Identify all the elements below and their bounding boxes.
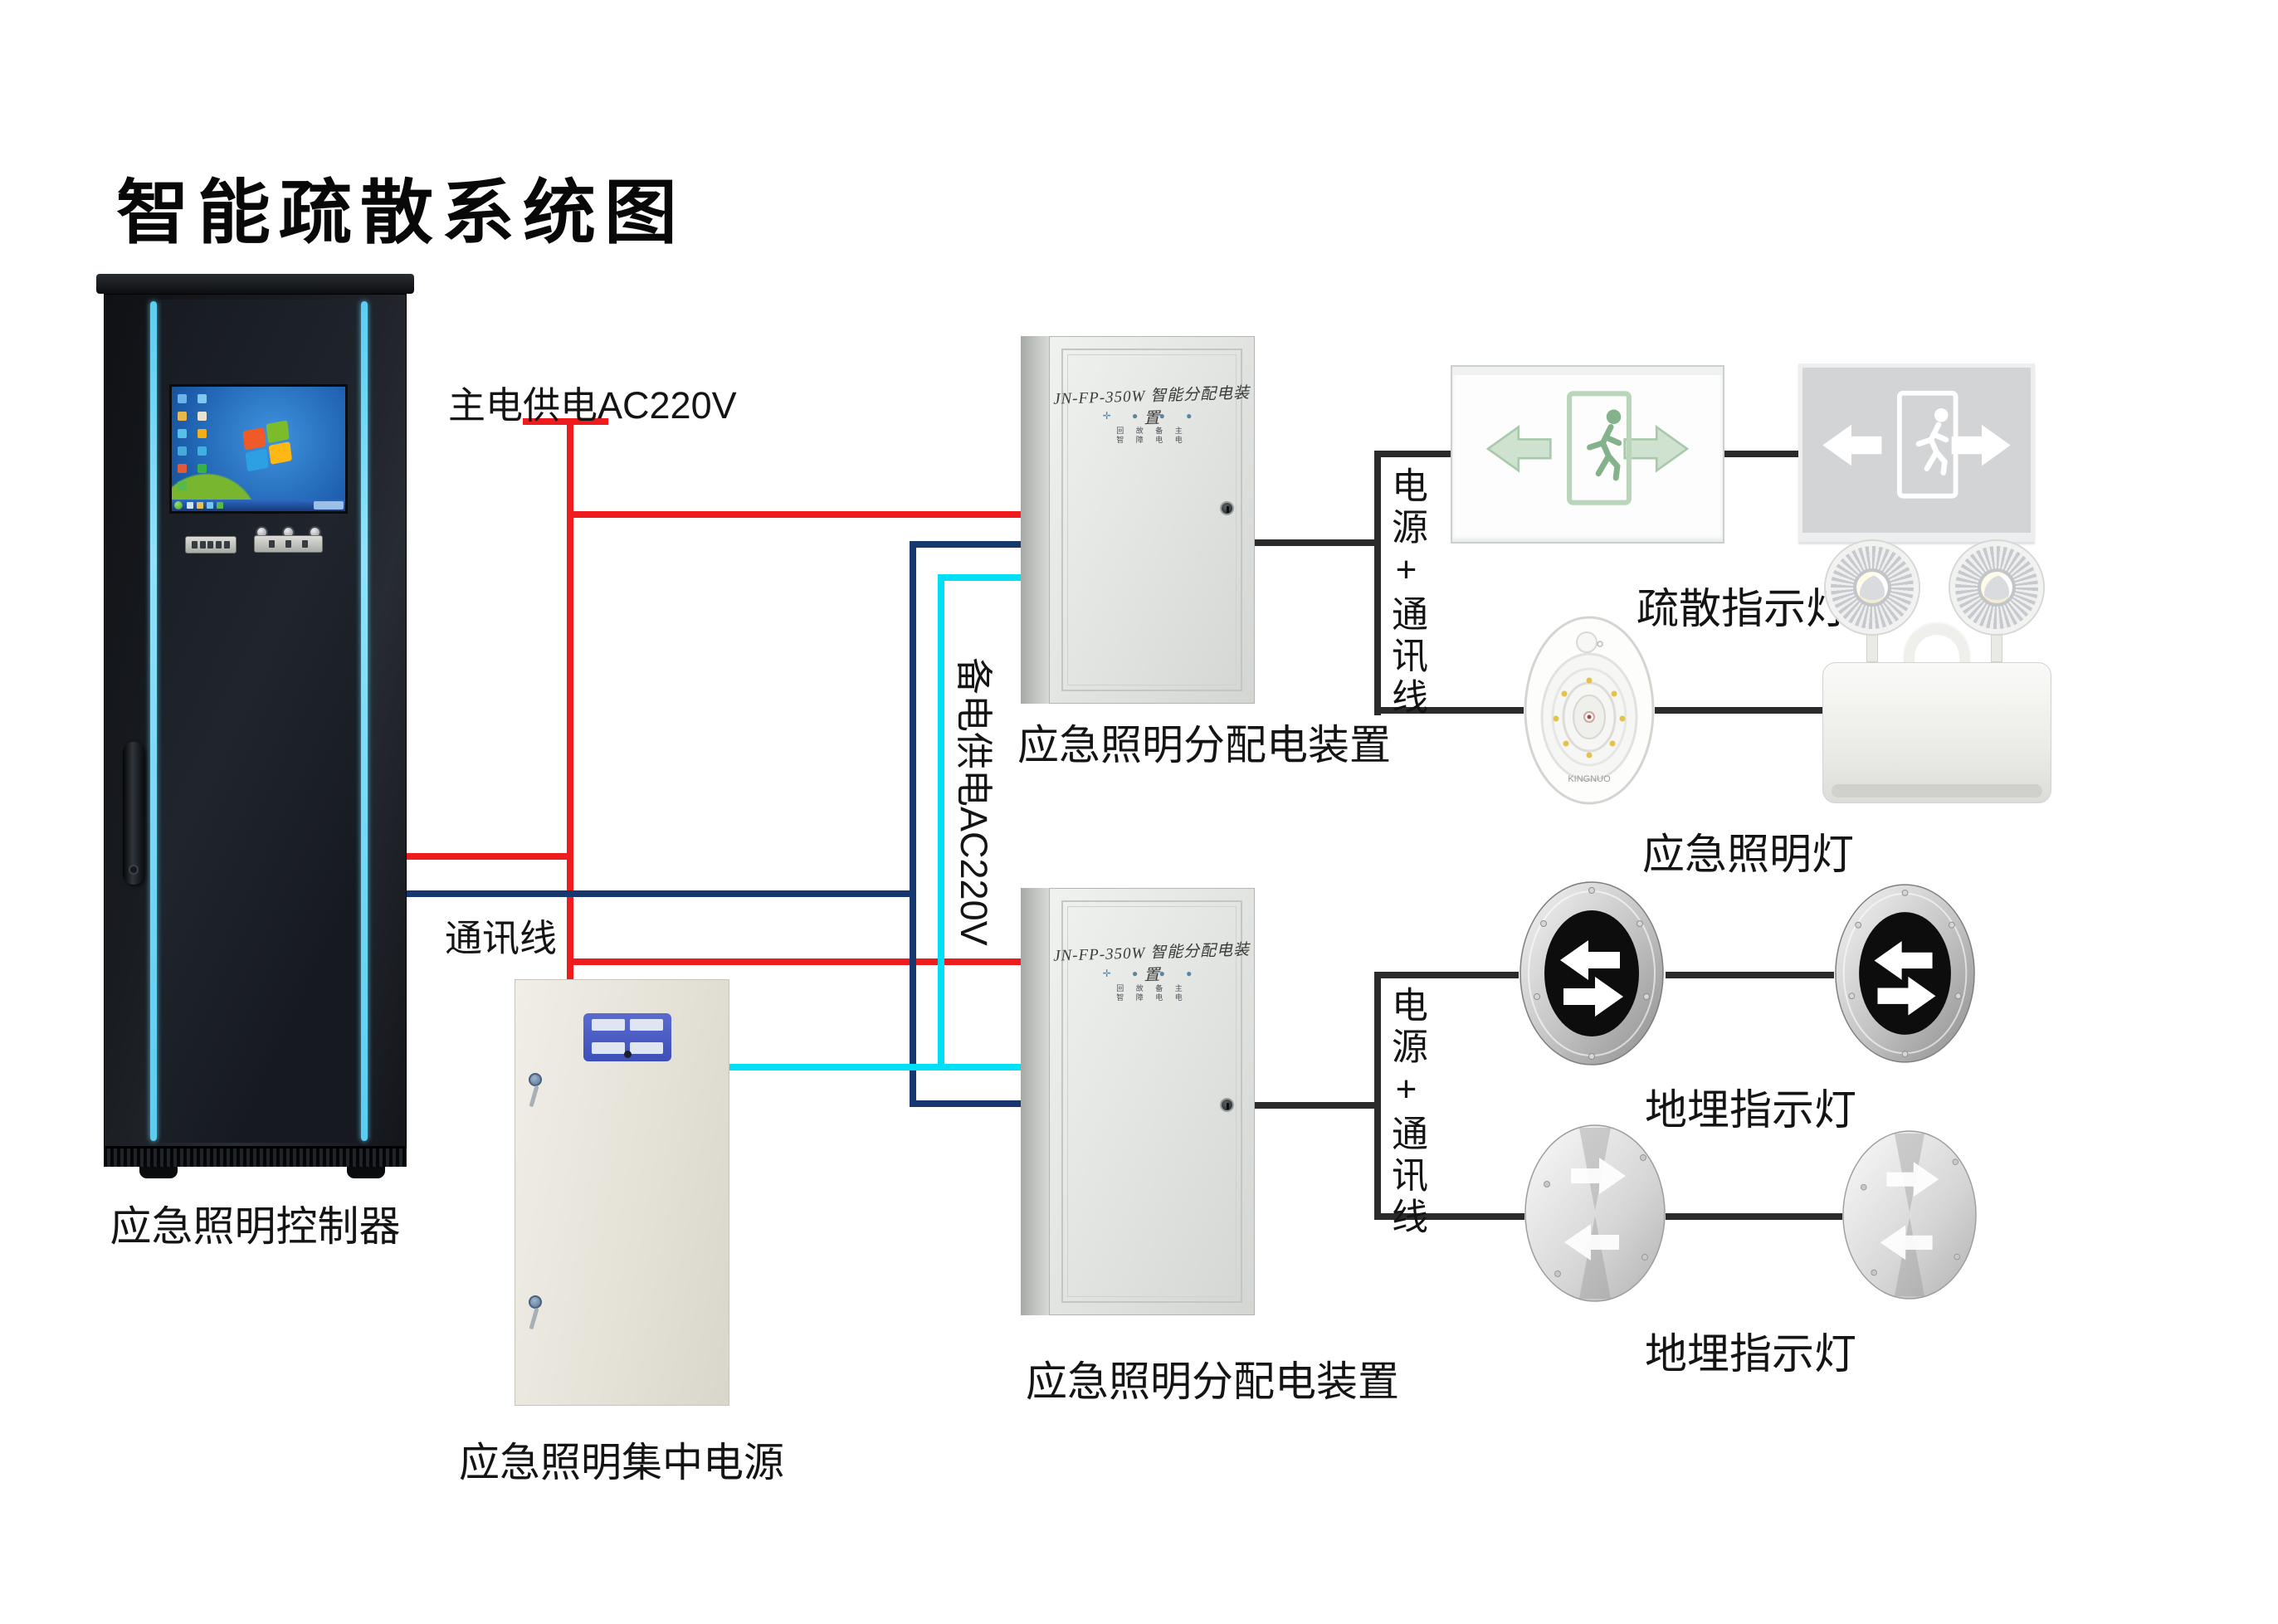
box-model-text: JN-FP-350W 智能分配电装置	[1049, 937, 1255, 988]
keyhole-icon	[529, 1295, 542, 1309]
lamp-stalk	[1991, 632, 2002, 662]
main-power-label: 主电供电AC220V	[448, 375, 737, 429]
central-power-label: 应急照明集中电源	[459, 1430, 784, 1489]
box-led-label-row: 回 故 备 主	[1050, 984, 1254, 992]
round-lamp-to-twin-lamp	[1655, 707, 1832, 714]
running-man-icon	[1919, 425, 1946, 473]
box-led-label-row: 智 障 电 电	[1050, 993, 1254, 1002]
buried2-a-to-b	[1666, 1213, 1842, 1220]
box-led-label-row: 回 故 备 主	[1050, 427, 1254, 435]
cabinet-accent-strip-left	[150, 301, 157, 1141]
twin-head-emergency-lamp	[1822, 528, 2051, 810]
start-orb-icon	[174, 501, 183, 510]
box-led-indicators: ✛ ● ● ●	[1050, 410, 1254, 422]
controller-screen	[169, 384, 348, 514]
wire-backup-riser	[938, 574, 944, 1070]
wire-comm-riser	[910, 541, 916, 1107]
diagram-canvas: { "title": "智能疏散系统图", "annotations": { "…	[0, 0, 2278, 1624]
backup-power-label: 备电供电AC220V	[950, 657, 1004, 946]
distribution-box-1-label: 应急照明分配电装置	[1017, 712, 1391, 772]
cabinet-vent	[104, 1147, 407, 1167]
wire-box1-to-bus1	[1255, 539, 1381, 546]
box-door: JN-FP-350W 智能分配电装置 ✛ ● ● ● 回 故 备 主 智 障 电…	[1049, 336, 1255, 704]
psu-knob	[624, 1051, 632, 1058]
distribution-box-1: JN-FP-350W 智能分配电装置 ✛ ● ● ● 回 故 备 主 智 障 电…	[1021, 336, 1255, 704]
wire-backup-to-box1	[938, 574, 1021, 581]
buried-light-steel	[1842, 1124, 1977, 1306]
box-side-panel	[1021, 336, 1049, 704]
exit-sign-unlit	[1798, 363, 2035, 542]
cabinet-label: 应急照明控制器	[104, 1193, 407, 1253]
exit-arrow-left-icon	[1488, 427, 1550, 471]
keyhole-icon	[529, 1073, 542, 1086]
bus2-to-buried1	[1374, 972, 1519, 978]
taskbar	[172, 500, 345, 511]
wire-power-to-box1	[567, 511, 1021, 518]
lamp-stalk	[1866, 632, 1878, 662]
wire-comm-to-box2	[910, 1100, 1021, 1107]
wire-power-to-cabinet	[407, 853, 573, 860]
bus1-to-exit-sign	[1374, 451, 1452, 457]
wire-comm-from-cabinet	[407, 890, 916, 897]
buried-light-steel	[1524, 1124, 1666, 1303]
bus1-vertical	[1374, 451, 1381, 715]
round-emergency-lamp: KINGNUO	[1524, 616, 1655, 805]
exit-sign-pictogram	[1802, 373, 2031, 518]
lamp-brand-text: KINGNUO	[1568, 774, 1611, 784]
running-man-head	[1607, 410, 1622, 425]
running-man-icon	[1590, 427, 1619, 478]
central-power-supply	[515, 979, 729, 1406]
distribution-box-2-label: 应急照明分配电装置	[1026, 1348, 1399, 1408]
cabinet-foot	[139, 1167, 178, 1178]
bus2-label: 电源+通讯线	[1388, 986, 1424, 1239]
box-model-text: JN-FP-350W 智能分配电装置	[1049, 380, 1255, 432]
box-lock-icon	[1220, 501, 1234, 515]
emergency-lamp-label: 应急照明灯	[1642, 820, 1854, 881]
cabinet-button-panel-left	[185, 536, 237, 554]
desktop-icons	[178, 394, 187, 403]
windows-logo-icon	[242, 422, 295, 475]
cabinet-accent-strip-right	[361, 301, 368, 1141]
comm-line-label: 通讯线	[445, 908, 557, 962]
wire-box2-to-bus2	[1255, 1102, 1381, 1109]
cabinet-top-cap	[96, 274, 414, 294]
distribution-box-2: JN-FP-350W 智能分配电装置 ✛ ● ● ● 回 故 备 主 智 障 电…	[1021, 888, 1255, 1315]
box-led-label-row: 智 障 电 电	[1050, 436, 1254, 444]
buried-light-black	[1834, 880, 1977, 1066]
exit-sign-label: 疏散指示灯	[1637, 574, 1848, 636]
exit-door-icon	[1569, 393, 1629, 502]
buried-light-label-2: 地埋指示灯	[1645, 1319, 1856, 1381]
exit-arrow-right-icon	[1952, 425, 2011, 466]
page-title: 智能疏散系统图	[116, 157, 685, 258]
lamp-battery-box	[1822, 662, 2051, 803]
lamp-head-right	[1950, 541, 2043, 634]
buried1-a-to-b	[1666, 972, 1834, 978]
box-led-indicators: ✛ ● ● ●	[1050, 968, 1254, 979]
buried-light-black	[1519, 880, 1666, 1066]
running-man-head	[1934, 408, 1949, 422]
cabinet-foot	[347, 1167, 385, 1178]
exit-sign1-to-sign2	[1724, 451, 1798, 457]
box-lock-icon	[1220, 1098, 1234, 1112]
exit-sign-lit	[1451, 365, 1724, 544]
exit-arrow-right-icon	[1625, 427, 1687, 471]
lamp-test-button	[1577, 632, 1597, 652]
exit-sign-pictogram	[1452, 372, 1723, 526]
system-tray	[314, 501, 344, 510]
psu-control-panel	[583, 1013, 671, 1061]
emergency-lighting-controller-cabinet	[104, 294, 407, 1147]
box-side-panel	[1021, 888, 1049, 1315]
cabinet-lock-icon	[129, 865, 139, 875]
exit-door-icon	[1900, 393, 1956, 496]
wire-power-to-box2	[567, 958, 1021, 965]
bus2-vertical	[1374, 972, 1381, 1220]
taskbar-icons	[187, 502, 193, 509]
cabinet-button-panel-right	[254, 535, 323, 553]
wire-comm-to-box1	[910, 541, 1021, 548]
cabinet-door-handle	[123, 742, 144, 885]
exit-arrow-left-icon	[1822, 425, 1881, 466]
box-door: JN-FP-350W 智能分配电装置 ✛ ● ● ● 回 故 备 主 智 障 电…	[1049, 888, 1255, 1315]
bus1-label: 电源+通讯线	[1388, 466, 1424, 719]
buried-light-label-1: 地埋指示灯	[1645, 1075, 1856, 1137]
lamp-head-left	[1826, 541, 1919, 634]
wire-backup-from-psu	[729, 1064, 1021, 1070]
